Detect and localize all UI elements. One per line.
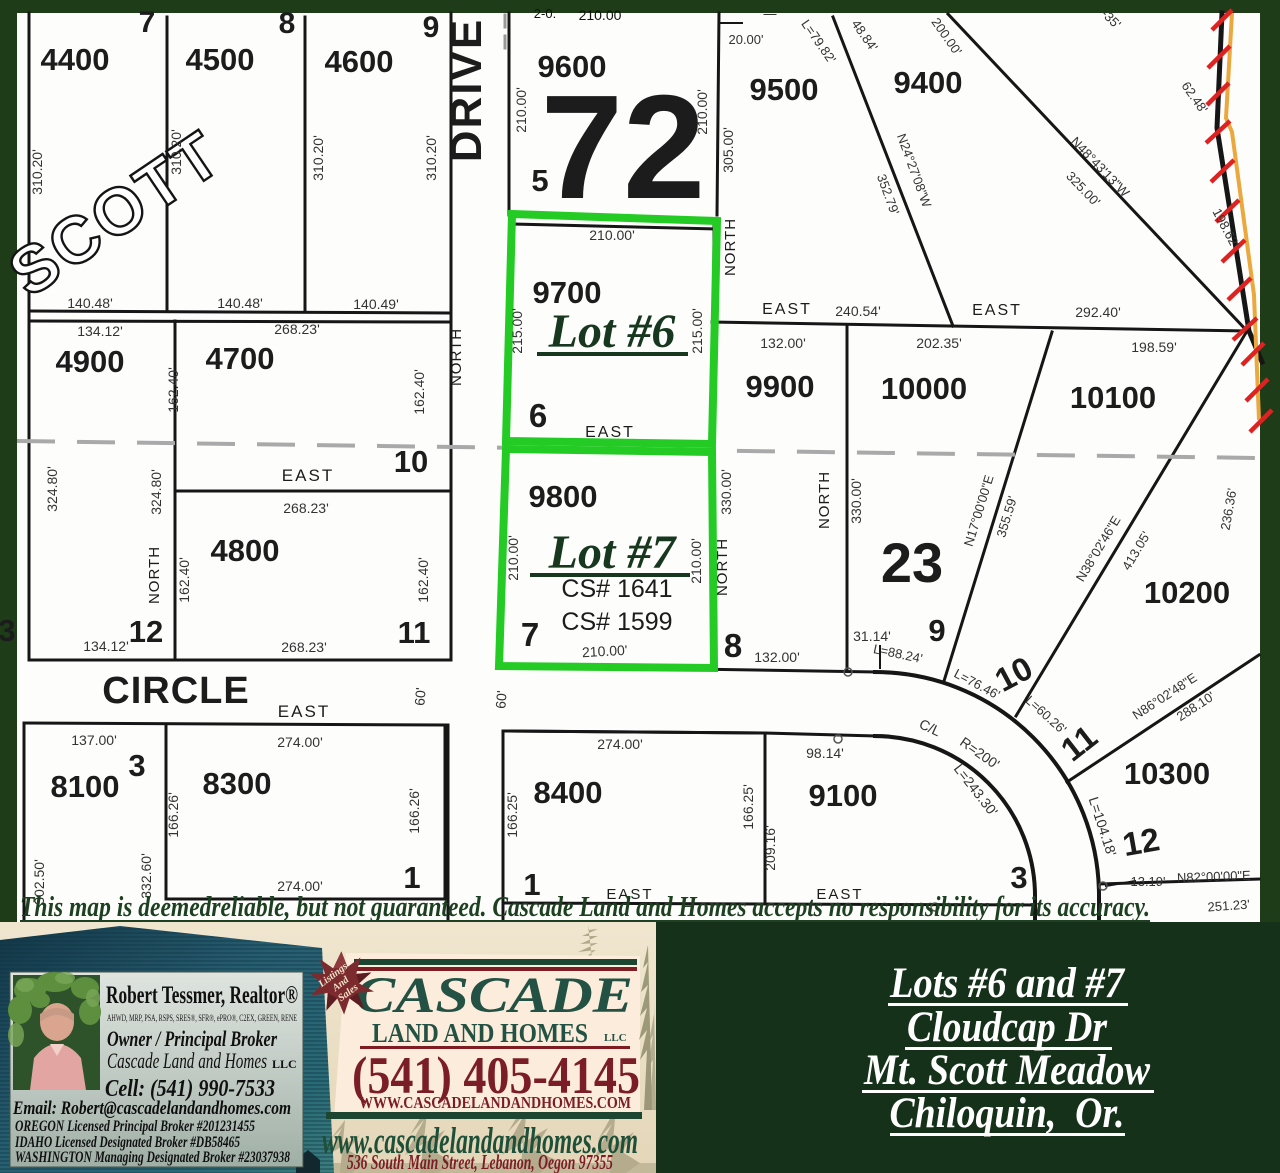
svg-text:9: 9 [423, 11, 440, 44]
svg-text:202.35': 202.35' [916, 335, 962, 351]
svg-text:Lots #6 and #7: Lots #6 and #7 [889, 960, 1125, 1007]
svg-text:132.00': 132.00' [754, 649, 800, 665]
svg-text:N82°00'00"E: N82°00'00"E [1177, 868, 1252, 886]
svg-text:215.00': 215.00' [509, 308, 525, 354]
svg-text:310.20': 310.20' [29, 149, 45, 195]
svg-text:1: 1 [403, 860, 420, 895]
svg-text:60': 60' [411, 687, 429, 707]
svg-text:EAST: EAST [278, 702, 330, 721]
svg-text:7: 7 [521, 616, 539, 653]
svg-text:Email: Robert@cascadelandandho: Email: Robert@cascadelandandhomes.com [12, 1098, 291, 1119]
svg-text:210.00': 210.00' [582, 642, 628, 660]
svg-text:4600: 4600 [325, 44, 394, 79]
svg-text:Lot #6: Lot #6 [548, 305, 676, 358]
svg-text:9500: 9500 [750, 72, 819, 107]
svg-text:8: 8 [724, 627, 742, 664]
svg-text:210.00': 210.00' [589, 227, 635, 243]
svg-text:137.00': 137.00' [71, 732, 117, 748]
svg-text:4900: 4900 [56, 344, 125, 379]
svg-text:Cloudcap Dr: Cloudcap Dr [907, 1004, 1108, 1051]
svg-text:310.20': 310.20' [168, 129, 184, 175]
svg-text:10100: 10100 [1070, 380, 1156, 415]
svg-text:268.23': 268.23' [274, 321, 320, 337]
svg-text:WASHINGTON Managing Designated: WASHINGTON Managing Designated Broker #2… [15, 1149, 290, 1166]
svg-text:268.23': 268.23' [281, 639, 327, 655]
svg-text:134.12': 134.12' [83, 638, 129, 654]
svg-text:Robert Tessmer, Realtor®: Robert Tessmer, Realtor® [106, 982, 298, 1009]
svg-text:132.00': 132.00' [760, 335, 806, 351]
svg-text:4400: 4400 [41, 42, 110, 77]
svg-text:210.00': 210.00' [688, 538, 704, 584]
svg-text:EAST: EAST [585, 424, 635, 441]
svg-text:305.00': 305.00' [720, 127, 736, 173]
svg-text:536 South Main Street, Lebanon: 536 South Main Street, Lebanon, Oegon 97… [347, 1150, 613, 1173]
svg-text:EAST: EAST [762, 301, 812, 318]
svg-text:98.14': 98.14' [806, 745, 844, 761]
svg-text:10000: 10000 [881, 371, 967, 406]
svg-text:4700: 4700 [206, 341, 275, 376]
svg-text:13.19': 13.19' [1130, 874, 1165, 889]
svg-text:310.20': 310.20' [423, 135, 439, 181]
svg-text:CIRCLE: CIRCLE [102, 670, 249, 712]
svg-text:WWW.CASCADELANDANDHOMES.COM: WWW.CASCADELANDANDHOMES.COM [359, 1093, 631, 1112]
svg-text:—: — [764, 6, 777, 21]
svg-text:310.20': 310.20' [310, 135, 326, 181]
svg-text:9900: 9900 [746, 369, 815, 404]
svg-text:23: 23 [881, 531, 943, 594]
svg-text:31.14': 31.14' [853, 628, 891, 644]
svg-text:NORTH: NORTH [816, 471, 833, 529]
svg-text:5: 5 [531, 163, 548, 198]
svg-text:OREGON Licensed Principal Brok: OREGON Licensed Principal Broker #201231… [15, 1118, 255, 1135]
svg-text:Lot #7: Lot #7 [548, 526, 678, 579]
svg-text:330.00': 330.00' [848, 478, 864, 524]
svg-text:10200: 10200 [1144, 575, 1230, 610]
svg-text:10: 10 [394, 444, 428, 479]
svg-text:166.25': 166.25' [740, 784, 756, 830]
svg-text:9800: 9800 [529, 479, 598, 514]
svg-text:2-0.: 2-0. [534, 6, 556, 21]
svg-text:162.40': 162.40' [411, 369, 427, 415]
svg-text:LLC: LLC [604, 1032, 627, 1044]
svg-text:210.00': 210.00' [513, 87, 529, 133]
svg-text:9: 9 [928, 613, 945, 648]
svg-text:Chiloquin, Or.: Chiloquin, Or. [890, 1090, 1125, 1137]
svg-text:140.49': 140.49' [353, 296, 399, 312]
svg-text:162.40': 162.40' [176, 557, 192, 603]
svg-text:4500: 4500 [186, 42, 255, 77]
svg-text:72: 72 [541, 65, 706, 230]
svg-text:140.48': 140.48' [67, 295, 113, 311]
svg-text:166.25': 166.25' [504, 792, 520, 838]
svg-text:209.16': 209.16' [762, 825, 778, 871]
svg-text:210.00: 210.00 [579, 7, 622, 23]
svg-text:8400: 8400 [534, 775, 603, 810]
svg-text:292.40': 292.40' [1075, 304, 1121, 320]
svg-text:251.23': 251.23' [1207, 897, 1250, 915]
svg-text:8300: 8300 [203, 766, 272, 801]
svg-text:AHWD, MRP, PSA, RSPS, SRES®, S: AHWD, MRP, PSA, RSPS, SRES®, SFR®, ePRO®… [107, 1013, 297, 1023]
svg-text:Cascade Land and Homes: Cascade Land and Homes [107, 1048, 267, 1073]
svg-text:140.48': 140.48' [217, 295, 263, 311]
svg-text:EAST: EAST [282, 466, 334, 485]
svg-text:NORTH: NORTH [714, 538, 731, 596]
svg-text:166.26': 166.26' [165, 792, 181, 838]
svg-text:12: 12 [129, 614, 163, 649]
svg-text:CASCADE: CASCADE [355, 968, 633, 1024]
svg-text:6: 6 [529, 397, 547, 434]
svg-text:11: 11 [398, 615, 431, 650]
svg-text:7: 7 [139, 6, 156, 39]
svg-text:4800: 4800 [211, 533, 280, 568]
svg-text:LAND AND HOMES: LAND AND HOMES [372, 1018, 588, 1048]
svg-text:210.00': 210.00' [505, 535, 521, 581]
svg-text:EAST: EAST [972, 302, 1022, 319]
svg-text:166.26': 166.26' [406, 788, 422, 834]
svg-text:3: 3 [1010, 860, 1027, 895]
svg-text:3: 3 [0, 613, 16, 648]
svg-text:162.40': 162.40' [165, 367, 181, 413]
svg-text:330.00': 330.00' [718, 469, 734, 515]
svg-text:3: 3 [128, 748, 145, 783]
svg-text:DRIVE: DRIVE [442, 18, 491, 162]
svg-text:12: 12 [1120, 820, 1163, 863]
svg-text:CS# 1641: CS# 1641 [561, 575, 672, 603]
svg-text:8100: 8100 [51, 769, 120, 804]
svg-text:134.12': 134.12' [77, 323, 123, 339]
svg-text:215.00': 215.00' [689, 308, 705, 354]
svg-text:20.00': 20.00' [728, 32, 763, 47]
svg-text:268.23': 268.23' [283, 500, 329, 516]
svg-text:NORTH: NORTH [146, 546, 163, 604]
svg-text:324.80': 324.80' [44, 466, 60, 512]
svg-text:9400: 9400 [894, 65, 963, 100]
svg-text:324.80': 324.80' [148, 469, 164, 515]
svg-text:NORTH: NORTH [448, 328, 465, 386]
svg-text:9100: 9100 [809, 778, 878, 813]
svg-text:210.00': 210.00' [694, 89, 710, 135]
svg-text:60': 60' [492, 690, 510, 710]
svg-text:198.59': 198.59' [1131, 339, 1177, 355]
svg-text:CS# 1599: CS# 1599 [561, 608, 672, 636]
svg-text:This map is deemedreliable, bu: This map is deemedreliable, but not guar… [20, 891, 1150, 923]
svg-text:274.00': 274.00' [597, 736, 643, 752]
svg-text:240.54': 240.54' [835, 303, 881, 319]
svg-text:274.00': 274.00' [277, 734, 323, 750]
svg-text:NORTH: NORTH [722, 218, 739, 276]
svg-text:10300: 10300 [1124, 756, 1210, 791]
svg-text:162.40': 162.40' [415, 557, 431, 603]
svg-text:LLC: LLC [272, 1057, 297, 1071]
svg-text:Mt. Scott Meadow: Mt. Scott Meadow [863, 1047, 1150, 1094]
svg-text:8: 8 [279, 7, 296, 40]
